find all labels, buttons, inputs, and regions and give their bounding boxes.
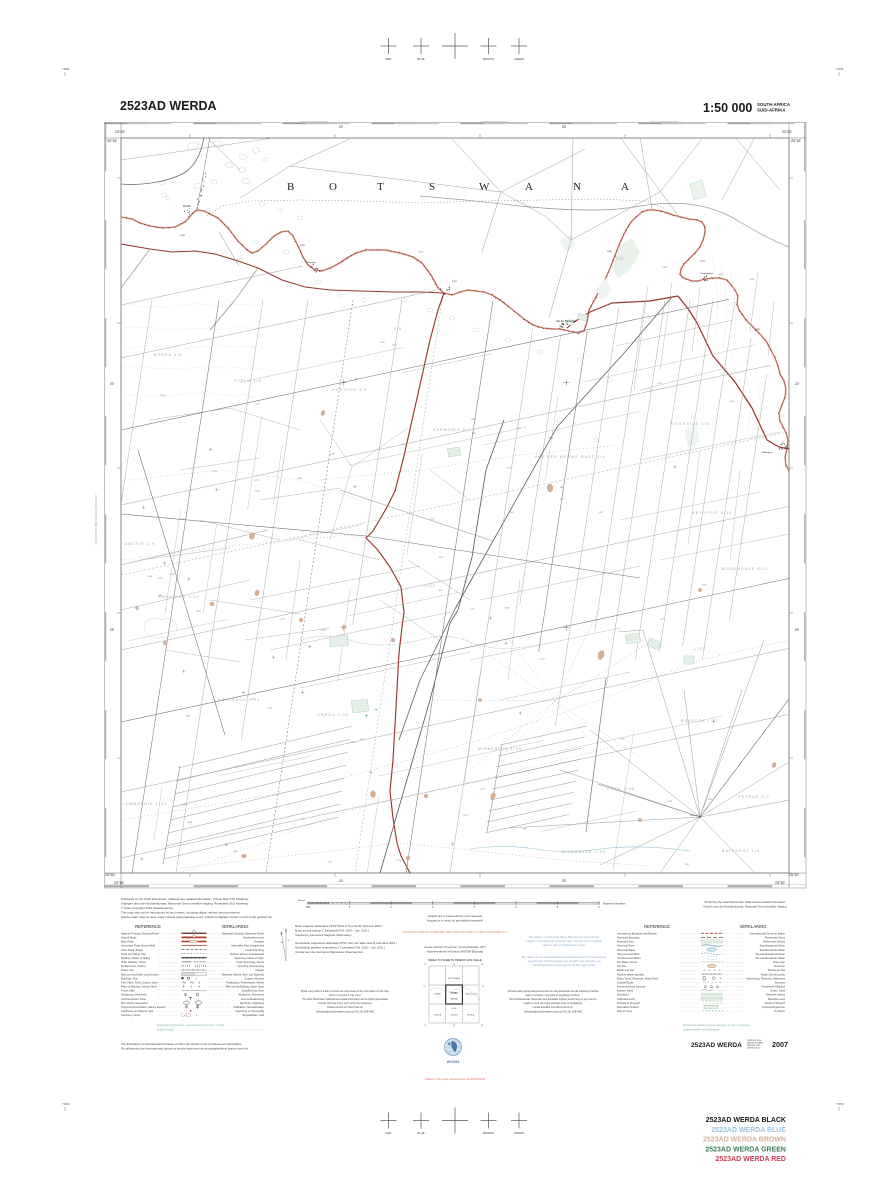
- svg-text:1287: 1287: [657, 383, 663, 385]
- svg-text:Mean annual change 2' Eastward: Mean annual change 2' Eastwards( Feb. 20…: [295, 929, 369, 933]
- svg-text:BLUE: BLUE: [417, 57, 424, 61]
- svg-text:1294: 1294: [707, 799, 713, 801]
- svg-text:PS: PS: [191, 981, 195, 984]
- svg-text:1301: 1301: [438, 590, 444, 592]
- svg-text:Van der Merwerust: Van der Merwerust: [556, 320, 576, 323]
- svg-text:Cultivated Land: Cultivated Land: [617, 997, 635, 1001]
- svg-text:Protected Area: Protected Area: [617, 940, 634, 944]
- svg-text:Kontak asseblief ons Kliënte D: Kontak asseblief ons Kliënte Diens by:: [533, 1006, 574, 1009]
- svg-text:1322: 1322: [267, 707, 273, 709]
- svg-text:kaart te verseker, mag foute o: kaart te verseker, mag foute of weglatin…: [526, 994, 581, 997]
- svg-text:AMETIS 1/9: AMETIS 1/9: [125, 542, 155, 546]
- svg-text:Ellipsoidal heights were suppl: Ellipsoidal heights were supplanted duri…: [157, 1023, 225, 1027]
- svg-text:25°: 25°: [482, 986, 485, 988]
- svg-text:Mean magnetic declination 19°5: Mean magnetic declination 19°52' West of…: [295, 924, 383, 928]
- svg-text:margin by short blue ticks at: margin by short blue ticks at 10 000 met…: [526, 940, 602, 943]
- svg-text:1289: 1289: [662, 267, 668, 269]
- svg-text:Fence; Wall: Fence; Wall: [121, 989, 135, 993]
- svg-text:Dry Water Course: Dry Water Course: [617, 960, 638, 964]
- svg-text:2523AD WERDA GREEN: 2523AD WERDA GREEN: [705, 1146, 786, 1153]
- svg-text:Begraafplaas; Graf: Begraafplaas; Graf: [243, 1013, 265, 1017]
- svg-text:Perennial River: Perennial River: [617, 944, 635, 948]
- svg-text:Vuurtoring en Seevaartlig: Vuurtoring en Seevaartlig: [235, 1009, 264, 1013]
- svg-text:O: O: [329, 181, 337, 193]
- svg-text:Communication Tower: Communication Tower: [121, 997, 146, 1001]
- svg-text:1289: 1289: [297, 478, 303, 480]
- svg-text:RIVERSIDE 3/5: RIVERSIDE 3/5: [670, 422, 710, 426]
- svg-text:Beboude Gebied (Hoë; Lae Digth: Beboude Gebied (Hoë; Lae Digtheid): [222, 972, 264, 976]
- svg-text:1301: 1301: [523, 829, 529, 831]
- svg-text:N: N: [573, 181, 581, 193]
- svg-text:Prominente Klipbank: Prominente Klipbank: [761, 985, 785, 989]
- svg-text:B: B: [287, 181, 294, 193]
- svg-text:Lighthouse and Marine Light: Lighthouse and Marine Light: [121, 1009, 153, 1013]
- svg-text:1301: 1301: [225, 281, 231, 283]
- svg-text:Main Road: Main Road: [121, 940, 134, 944]
- svg-text:Die Hoofdirektoraat: Nasionale: Die Hoofdirektoraat: Nasionale Geo-ruimt…: [509, 998, 596, 1001]
- svg-text:HARMONIE 5/7: HARMONIE 5/7: [433, 428, 471, 432]
- svg-text:1272: 1272: [700, 261, 706, 263]
- svg-text:BLUE: BLUE: [417, 1131, 424, 1135]
- svg-text:Data for this map extracted as: Data for this map extracted as at 06/02/…: [425, 1077, 485, 1081]
- svg-text:WERDA: WERDA: [451, 997, 458, 1000]
- svg-text:Secondary Road; Bench Mark: Secondary Road; Bench Mark: [121, 944, 156, 948]
- svg-text:Provinsiale Grens: Provinsiale Grens: [765, 936, 786, 940]
- svg-text:Pyplyn (bo die grond): Pyplyn (bo die grond): [761, 972, 785, 976]
- svg-text:1289: 1289: [418, 251, 424, 253]
- svg-text:BROWN: BROWN: [483, 57, 494, 61]
- svg-text:SOUTH AFRICA: SOUTH AFRICA: [757, 102, 791, 107]
- svg-text:Sekondêre Pad; Hoogtemerk: Sekondêre Pad; Hoogtemerk: [231, 944, 265, 948]
- svg-text:Gauss Conform Projection, Cent: Gauss Conform Projection, Central Meridi…: [424, 945, 486, 949]
- svg-text:Opvulling; Deurgrawing: Opvulling; Deurgrawing: [238, 964, 265, 968]
- svg-text:25°: 25°: [423, 986, 426, 988]
- svg-text:Tweelingspan: Tweelingspan: [700, 273, 714, 275]
- svg-text:Bewerkte Land: Bewerkte Land: [768, 997, 786, 1001]
- svg-text:1275: 1275: [463, 815, 469, 817]
- svg-text:GEDRUK 2012: GEDRUK 2012: [747, 1048, 760, 1050]
- svg-text:Orchard or Vineyard: Orchard or Vineyard: [617, 1001, 640, 1005]
- svg-text:Middelputs: Middelputs: [762, 451, 773, 454]
- svg-text:Draadheining; Muur: Draadheining; Muur: [242, 989, 265, 993]
- svg-text:2523DA: 2523DA: [467, 1013, 475, 1016]
- svg-text:20': 20': [339, 125, 344, 129]
- svg-text:Provincial Boundary: Provincial Boundary: [617, 936, 640, 940]
- svg-text:Non-perennial River: Non-perennial River: [617, 952, 640, 956]
- svg-text:WOODHOUSE 8/11: WOODHOUSE 8/11: [721, 567, 768, 571]
- svg-text:Werda: Werda: [183, 204, 191, 208]
- svg-text:2523AC: 2523AC: [434, 993, 442, 996]
- svg-text:values in units of 10 000 metr: values in units of 10 000 metres in blue: [542, 944, 586, 947]
- svg-text:23°30': 23°30': [782, 130, 792, 134]
- svg-text:errors or omissions may occur.: errors or omissions may occur.: [329, 994, 362, 997]
- svg-text:Marsh and Vlei: Marsh and Vlei: [617, 968, 634, 972]
- svg-text:20': 20': [110, 382, 115, 386]
- svg-text:1275: 1275: [548, 437, 554, 439]
- svg-text:ingelig te word van enige soda: ingelig te word van enige sodanige foute…: [524, 1002, 583, 1005]
- svg-text:RED: RED: [386, 57, 392, 61]
- svg-text:WILDEBEES 1/33: WILDEBEES 1/33: [562, 850, 606, 854]
- svg-text:1287: 1287: [472, 433, 478, 435]
- svg-text:Whilst every effort is made to: Whilst every effort is made to ensure th…: [301, 990, 390, 993]
- svg-text:1294: 1294: [158, 578, 164, 580]
- svg-text:GREEN: GREEN: [514, 1131, 524, 1135]
- svg-text:L/33: L/33: [694, 647, 705, 651]
- svg-text:1280: 1280: [607, 251, 613, 253]
- svg-text:PETRUS 3/3: PETRUS 3/3: [738, 795, 769, 799]
- svg-text:CREG 1/36: CREG 1/36: [607, 787, 635, 791]
- svg-text:Coastal Rocks: Coastal Rocks: [617, 980, 634, 984]
- svg-text:Built-up Area (High; Low Densi: Built-up Area (High; Low Density): [121, 972, 159, 976]
- svg-text:1275: 1275: [254, 480, 260, 482]
- svg-text:INDEX TO SHEETS INDEKS VAN: INDEX TO SHEETS INDEKS VAN VELLE: [428, 958, 482, 962]
- svg-text:1322: 1322: [505, 608, 511, 610]
- svg-text:OMEGA 1/35: OMEGA 1/35: [317, 713, 349, 717]
- svg-text:Pipeline (above ground): Pipeline (above ground): [617, 972, 644, 976]
- svg-text:VERKLARING: VERKLARING: [740, 924, 767, 929]
- svg-text:1287: 1287: [237, 259, 243, 261]
- svg-text:Trigonometrical Station; Marin: Trigonometrical Station; Marine Beacon: [121, 1005, 166, 1009]
- svg-text:✝✝: ✝✝: [184, 1014, 188, 1017]
- svg-text:Hartebeesthoek 94 Datum (WGS84: Hartebeesthoek 94 Datum (WGS84 Ellipsoid…: [427, 950, 483, 954]
- svg-text:1294: 1294: [438, 557, 444, 559]
- svg-text:Windpomp: Windpomp: [690, 815, 699, 817]
- svg-text:1287: 1287: [598, 512, 604, 514]
- svg-text:Dry Pan: Dry Pan: [617, 964, 627, 968]
- svg-text:1310: 1310: [351, 742, 357, 744]
- svg-text:2523AD WERDA BROWN: 2523AD WERDA BROWN: [703, 1137, 786, 1144]
- svg-text:Perennial Water: Perennial Water: [617, 948, 635, 952]
- svg-text:24°: 24°: [481, 1025, 484, 1027]
- svg-text:25': 25': [562, 879, 567, 883]
- svg-text:Gemiddelde magnetiese deklinas: Gemiddelde magnetiese deklinasie 19°52' …: [295, 941, 397, 945]
- svg-text:1301: 1301: [730, 401, 736, 403]
- svg-text:COLORADO 1/34: COLORADO 1/34: [218, 698, 261, 702]
- svg-text:Windpomp; Monument: Windpomp; Monument: [238, 993, 264, 997]
- svg-text:2523CB: 2523CB: [450, 1014, 458, 1016]
- svg-text:23°15': 23°15': [114, 881, 124, 885]
- svg-text:Spoorweg; Stasie of Sylyn: Spoorweg; Stasie of Sylyn: [234, 956, 264, 960]
- svg-text:1310: 1310: [160, 395, 166, 397]
- svg-text:GREEN: GREEN: [514, 57, 524, 61]
- svg-text:S: S: [429, 181, 435, 193]
- svg-text:Original height: Original height: [157, 1028, 174, 1032]
- svg-text:Other Railway; Tunnel: Other Railway; Tunnel: [121, 960, 146, 964]
- svg-text:Geboue; Murasie: Geboue; Murasie: [244, 976, 264, 980]
- svg-text:1289: 1289: [186, 715, 192, 717]
- svg-text:25': 25': [795, 628, 800, 632]
- svg-text:2523CA: 2523CA: [434, 1013, 442, 1016]
- svg-text:Hoogtes is in meter bo gemidde: Hoogtes is in meter bo gemiddelde seespi…: [427, 919, 483, 923]
- svg-text:2523AD WERDA RED: 2523AD WERDA RED: [715, 1156, 786, 1163]
- svg-text:Windpump; Monument: Windpump; Monument: [121, 993, 147, 997]
- svg-text:Piekbaken; Seevaartbaken: Piekbaken; Seevaartbaken: [234, 1005, 265, 1009]
- svg-text:23°15': 23°15': [115, 130, 125, 134]
- svg-text:1306: 1306: [187, 822, 193, 824]
- svg-text:Vergelee & KD: Vergelee & KD: [465, 993, 478, 996]
- svg-text:TRIM: TRIM: [62, 1102, 70, 1106]
- svg-text:WERDA 5/6: WERDA 5/6: [154, 353, 183, 357]
- svg-text:1301: 1301: [509, 512, 515, 514]
- svg-text:clientcare@ruraldevelopment.go: clientcare@ruraldevelopment.gov.za Tel: …: [524, 1011, 583, 1014]
- svg-text:Embankment; Cutting: Embankment; Cutting: [121, 964, 146, 968]
- svg-text:1275: 1275: [396, 860, 402, 862]
- svg-text:Buildings; Ruin: Buildings; Ruin: [121, 976, 139, 980]
- svg-text:Printed by the Chief Directora: Printed by the Chief Directorate: Nation…: [705, 900, 786, 904]
- svg-text:Published by the Chief Directo: Published by the Chief Directorate: Nati…: [121, 897, 249, 901]
- svg-text:RED: RED: [386, 1131, 392, 1135]
- svg-text:BROWN: BROWN: [483, 1131, 494, 1135]
- svg-text:1268: 1268: [755, 329, 761, 331]
- svg-text:Standhoudende Water: Standhoudende Water: [760, 948, 786, 952]
- svg-text:Other Road; Bridge: Other Road; Bridge: [121, 948, 144, 952]
- svg-text:Row of Trees: Row of Trees: [617, 1009, 633, 1013]
- svg-text:RUSTHOF 3/6: RUSTHOF 3/6: [332, 388, 367, 392]
- svg-text:REFERENCE: REFERENCE: [135, 924, 161, 929]
- svg-text:International Boundary and Bea: International Boundary and Beacon: [617, 932, 658, 936]
- svg-text:25°30': 25°30': [105, 873, 115, 877]
- svg-text:Non-Perennial Water: Non-Perennial Water: [617, 956, 641, 960]
- svg-text:1310: 1310: [506, 468, 512, 470]
- svg-text:1289: 1289: [182, 805, 188, 807]
- svg-text:23°: 23°: [424, 1025, 427, 1027]
- svg-text:MINNESOTA 1/35: MINNESOTA 1/35: [478, 747, 522, 751]
- svg-text:Nasionale Deurpad; Nasionale R: Nasionale Deurpad; Nasionale Roete: [222, 932, 265, 936]
- svg-text:Hoofverkeersroete: Hoofverkeersroete: [243, 936, 265, 940]
- svg-text:SARATOGA 1/12: SARATOGA 1/12: [158, 595, 199, 599]
- svg-text:W: W: [479, 181, 490, 193]
- svg-text:2523AD WERDA: 2523AD WERDA: [120, 99, 217, 113]
- svg-text:Die afbakening van internasion: Die afbakening van internasionale grense…: [121, 1047, 249, 1051]
- svg-text:1295: 1295: [300, 245, 306, 247]
- svg-text:BATHURST 1/4: BATHURST 1/4: [722, 849, 760, 853]
- svg-text:Power Line: Power Line: [121, 968, 134, 972]
- svg-text:Medium en uitgawe nommer aange: Medium en uitgawe nommer aangedui in blo…: [683, 1023, 750, 1027]
- svg-text:The delimitation of internatio: The delimitation of international bounda…: [121, 1042, 242, 1046]
- svg-text:TRIM: TRIM: [836, 1102, 844, 1106]
- svg-text:Kusrotse: Kusrotse: [775, 980, 786, 984]
- svg-text:A: A: [525, 181, 533, 193]
- svg-text:Kommunikasietoring: Kommunikasietoring: [241, 997, 265, 1001]
- svg-text:Standhoudende Rivier: Standhoudende Rivier: [760, 944, 785, 948]
- svg-text:Alhoewel alle pogings aangewen: Alhoewel alle pogings aangewend word om …: [508, 990, 599, 993]
- svg-text:1275: 1275: [327, 862, 333, 864]
- svg-text:Bosduiker: Bosduiker: [306, 261, 316, 264]
- svg-text:National Freeway; National Rou: National Freeway; National Route: [121, 932, 160, 936]
- svg-text:Gemiddelde jaarlikse veranderi: Gemiddelde jaarlikse verandering 2' Oosw…: [295, 946, 385, 950]
- svg-text:25°15': 25°15': [107, 139, 117, 143]
- svg-text:Bebosde Gebied: Bebosde Gebied: [766, 993, 786, 997]
- svg-text:20': 20': [795, 382, 800, 386]
- svg-text:koördinaatwaardes in eenhede v: koördinaatwaardes in eenhede van 10 000 …: [533, 964, 596, 967]
- svg-text:The Chief Directorate: Nationa: The Chief Directorate: National Geo-spat…: [302, 998, 389, 1001]
- svg-text:Please contact our Client Care: Please contact our Client Care at:: [327, 1006, 363, 1009]
- svg-text:WGS84: WGS84: [447, 1060, 460, 1064]
- svg-text:1322: 1322: [684, 864, 690, 866]
- svg-text:CONTOUR INTERVAL 20 METRES: CONTOUR INTERVAL 20 METRES VERTIKALE AFS…: [402, 930, 508, 934]
- svg-text:1294: 1294: [380, 342, 386, 344]
- svg-text:T: T: [377, 181, 384, 193]
- svg-text:VERKLARING: VERKLARING: [222, 924, 249, 929]
- svg-text:1275: 1275: [212, 471, 218, 473]
- svg-text:Heights are in metres above me: Heights are in metres above mean sea lev…: [428, 914, 483, 918]
- svg-text:Water Tower; Reservoir; Water: Water Tower; Reservoir; Water Point: [617, 976, 658, 980]
- svg-text:1000: 1000: [305, 907, 311, 909]
- svg-text:Arterial Route: Arterial Route: [121, 936, 137, 940]
- svg-text:✝: ✝: [196, 1014, 198, 1017]
- svg-text:clientcare@ruraldevelopment.go: clientcare@ruraldevelopment.gov.za Tel: …: [316, 1011, 375, 1014]
- svg-text:Post Office; Police Station; S: Post Office; Police Station; Store: [121, 980, 158, 984]
- svg-text:1306: 1306: [667, 801, 673, 803]
- svg-text:Ontspanningsterrein: Ontspanningsterrein: [762, 1005, 786, 1009]
- svg-text:1301: 1301: [516, 428, 522, 430]
- svg-text:Uitgegee deur die Hoofdirektor: Uitgegee deur die Hoofdirektoraat: Nasio…: [121, 902, 249, 906]
- svg-text:20': 20': [339, 879, 344, 883]
- svg-text:24°: 24°: [481, 964, 484, 966]
- svg-text:Kilometres Kilometers: Kilometres Kilometers: [603, 903, 626, 906]
- svg-text:25': 25': [562, 125, 567, 129]
- svg-text:SUID-AFRIKA: SUID-AFRIKA: [757, 108, 786, 113]
- svg-text:Drawee Pad en Voetslaanpad: Drawee Pad en Voetslaanpad: [230, 952, 264, 956]
- svg-text:2523AD: 2523AD: [450, 992, 458, 995]
- svg-text:1275: 1275: [402, 444, 408, 446]
- svg-text:of being informed of any such: of being informed of any such errors and…: [318, 1002, 373, 1005]
- svg-text:1299: 1299: [180, 235, 186, 237]
- svg-text:Moeras en Vlei: Moeras en Vlei: [768, 968, 785, 972]
- svg-text:© State Copyright 2012 Staat: © State Copyright 2012 Staatskopiereg: [121, 906, 173, 910]
- svg-text:Gedruk deur die Hoofdirektoraa: Gedruk deur die Hoofdirektoraat: Nasiona…: [703, 905, 787, 909]
- svg-text:LOMBARDIE 1/33: LOMBARDIE 1/33: [123, 802, 167, 806]
- svg-text:1275: 1275: [392, 344, 398, 346]
- svg-text:Ry Bome: Ry Bome: [775, 1009, 786, 1013]
- svg-text:Woodland: Woodland: [617, 993, 629, 997]
- svg-text:25': 25': [110, 628, 115, 632]
- svg-text:Place of Worship; School; Hote: Place of Worship; School; Hotel: [121, 985, 157, 989]
- svg-text:SYFLO 3/5: SYFLO 3/5: [234, 379, 262, 383]
- svg-text:Erosie; Sand: Erosie; Sand: [770, 989, 785, 993]
- svg-text:1289: 1289: [255, 491, 261, 493]
- svg-text:BOTSWANA: BOTSWANA: [448, 977, 460, 980]
- svg-text:R.S.A.: R.S.A.: [451, 1007, 457, 1010]
- svg-text:Droë Pan: Droë Pan: [774, 964, 785, 968]
- svg-text:1310: 1310: [471, 419, 477, 421]
- svg-text:Mynhoop; Uitgrawing: Mynhoop; Uitgrawing: [240, 1001, 265, 1005]
- svg-text:Ander Pad; Brug: Ander Pad; Brug: [245, 948, 264, 952]
- svg-text:2/5: 2/5: [616, 257, 624, 261]
- svg-text:1:50 000: 1:50 000: [703, 101, 752, 115]
- svg-text:VAN DER MERWE RUST 2/4: VAN DER MERWE RUST 2/4: [535, 455, 606, 459]
- svg-text:L/23: L/23: [424, 584, 435, 588]
- svg-text:Watertoring; Reservoir; Waterp: Watertoring; Reservoir; Waterpunt: [747, 976, 786, 980]
- svg-text:1294: 1294: [169, 574, 175, 576]
- svg-text:Railway; Station or Siding: Railway; Station or Siding: [121, 956, 151, 960]
- svg-text:Kraglyn: Kraglyn: [255, 968, 264, 972]
- svg-text:Prominent Rock Outcrop: Prominent Rock Outcrop: [617, 985, 645, 989]
- svg-text:Cemetery; Grave: Cemetery; Grave: [121, 1013, 141, 1017]
- svg-text:FIRST EDITION 1984 SECOND EDI: FIRST EDITION 1984 SECOND EDITION 2007: [95, 494, 98, 545]
- svg-text:25°30': 25°30': [789, 873, 799, 877]
- svg-text:2007: 2007: [772, 1040, 788, 1049]
- svg-text:REBECCA 1/37: REBECCA 1/37: [681, 719, 719, 723]
- svg-text:Poskantoor; Polisiestasie; Win: Poskantoor; Polisiestasie; Winkel: [226, 980, 264, 984]
- svg-text:volgens stelsel van kaartreeks: volgens stelsel van kaartreekse: [683, 1028, 720, 1032]
- svg-text:1287: 1287: [196, 611, 202, 613]
- svg-text:Hoofpad: Hoofpad: [254, 940, 264, 944]
- svg-text:Metres: Metres: [298, 899, 306, 902]
- svg-text:This map may not be reproduced: This map may not be reproduced by any me…: [121, 911, 240, 915]
- svg-text:1294: 1294: [701, 584, 707, 586]
- svg-text:1289: 1289: [321, 630, 327, 632]
- svg-text:1287: 1287: [452, 281, 458, 283]
- svg-text:Boord of Wingerd: Boord of Wingerd: [765, 1001, 785, 1005]
- svg-text:2523AD WERDA: 2523AD WERDA: [691, 1042, 742, 1049]
- svg-text:Plek van Aanbidding; Skool; Ho: Plek van Aanbidding; Skool; Hotel: [226, 985, 265, 989]
- svg-text:Verskaf deur die Hermanus Magn: Verskaf deur die Hermanus Magnetiese Obs…: [295, 950, 364, 954]
- svg-text:TRIM: TRIM: [836, 67, 844, 71]
- svg-text:25°15': 25°15': [791, 139, 801, 143]
- svg-text:H: H: [199, 986, 201, 989]
- svg-text:aangedui deur kort blou strepi: aangedui deur kort blou strepies teen 10…: [528, 960, 601, 963]
- svg-text:Erosion; Sand: Erosion; Sand: [617, 989, 634, 993]
- svg-text:Droë Loop: Droë Loop: [773, 960, 785, 964]
- svg-text:REFERENCE: REFERENCE: [644, 924, 670, 929]
- svg-text:The grid lines on this South A: The grid lines on this South African 50k…: [529, 936, 600, 939]
- svg-text:1294: 1294: [749, 279, 755, 281]
- svg-text:Supplied by Hermanus Magnetic: Supplied by Hermanus Magnetic Observator…: [295, 933, 352, 937]
- svg-text:2523AD WERDA BLUE: 2523AD WERDA BLUE: [711, 1127, 786, 1134]
- svg-text:Mine Dump; Excavation: Mine Dump; Excavation: [121, 1001, 148, 1005]
- svg-text:1294: 1294: [147, 576, 153, 578]
- svg-text:Hierdie kaart mag nie deur eni: Hierdie kaart mag nie deur enige metode …: [121, 915, 272, 919]
- svg-text:1287: 1287: [233, 851, 239, 853]
- svg-text:Internasionale Grens en Baken: Internasionale Grens en Baken: [750, 932, 786, 936]
- svg-text:Nie-standhoudende Rivier: Nie-standhoudende Rivier: [756, 952, 786, 956]
- svg-text:3/5: 3/5: [394, 327, 402, 331]
- svg-text:1306: 1306: [718, 274, 724, 276]
- svg-text:Nie-standhoudende Water: Nie-standhoudende Water: [755, 956, 785, 960]
- svg-text:TRIM: TRIM: [62, 67, 70, 71]
- svg-text:METOPPIE 5/10: METOPPIE 5/10: [692, 511, 733, 515]
- svg-text:23°30': 23°30': [775, 881, 785, 885]
- svg-text:Die ruitlyne van die Suid-Afri: Die ruitlyne van die Suid-Afrikaanse Koö…: [522, 956, 607, 959]
- svg-text:Track and Hiking Trail: Track and Hiking Trail: [121, 952, 146, 956]
- svg-text:2523AD WERDA BLACK: 2523AD WERDA BLACK: [706, 1117, 786, 1124]
- svg-text:23°: 23°: [424, 964, 427, 966]
- svg-text:A: A: [621, 181, 629, 193]
- svg-text:Recreation Ground: Recreation Ground: [617, 1005, 639, 1009]
- svg-text:Beskermde Gebied: Beskermde Gebied: [763, 940, 785, 944]
- svg-text:Ander Spoorweg; Tonnel: Ander Spoorweg; Tonnel: [236, 960, 264, 964]
